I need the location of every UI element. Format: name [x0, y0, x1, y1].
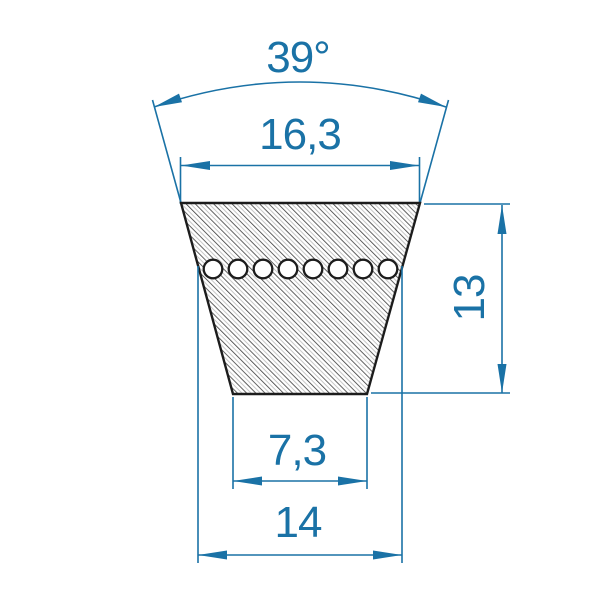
datum-width-arrow-right — [373, 551, 402, 560]
belt-profile-trapezoid — [181, 203, 420, 394]
angle-arrow-right — [418, 94, 446, 107]
datum-width-label: 14 — [275, 498, 322, 547]
belt-cross-section — [181, 203, 420, 394]
cord-circle — [229, 260, 248, 279]
angle-arrow-left — [154, 94, 182, 107]
cord-circle — [204, 260, 223, 279]
bottom-width-arrow-right — [338, 477, 367, 486]
vbelt-technical-drawing: 39° 16,3 — [0, 0, 600, 600]
bottom-width-label: 7,3 — [268, 426, 326, 475]
drawing-canvas: 39° 16,3 — [0, 0, 600, 600]
cord-circle — [379, 260, 398, 279]
height-label: 13 — [445, 275, 494, 322]
top-width-arrow-right — [390, 161, 419, 170]
cord-circle — [304, 260, 323, 279]
angle-arc — [154, 82, 446, 107]
bottom-width-arrow-left — [233, 477, 262, 486]
cord-circle — [279, 260, 298, 279]
cord-circle — [329, 260, 348, 279]
datum-width-arrow-left — [198, 551, 227, 560]
top-width-label: 16,3 — [259, 110, 341, 159]
top-width-arrow-left — [181, 161, 210, 170]
height-arrow-bottom — [498, 364, 507, 393]
flank-extension-left — [153, 100, 182, 203]
cord-circle — [254, 260, 273, 279]
height-arrow-top — [498, 205, 507, 234]
bottom-width-dimension: 7,3 — [233, 397, 367, 489]
cord-circle — [354, 260, 373, 279]
angle-label: 39° — [266, 33, 330, 82]
flank-extension-right — [420, 100, 449, 203]
top-width-dimension: 16,3 — [181, 110, 420, 204]
